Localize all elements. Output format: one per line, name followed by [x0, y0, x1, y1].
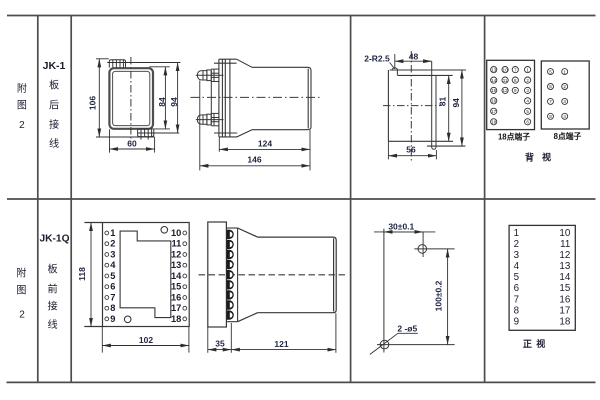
svg-text:7: 7 — [110, 293, 115, 303]
svg-text:4: 4 — [110, 260, 116, 270]
svg-text:1: 1 — [110, 228, 115, 238]
svg-text:94: 94 — [451, 98, 461, 108]
svg-text:13: 13 — [491, 67, 497, 72]
svg-text:10: 10 — [559, 228, 570, 239]
svg-text:4: 4 — [526, 99, 529, 104]
svg-text:5: 5 — [514, 272, 520, 283]
svg-text:8: 8 — [549, 114, 552, 119]
svg-text:8点端子: 8点端子 — [554, 131, 582, 141]
svg-text:1: 1 — [514, 228, 519, 239]
svg-text:1: 1 — [563, 69, 566, 74]
svg-text:102: 102 — [139, 335, 153, 345]
svg-text:118: 118 — [77, 267, 87, 281]
svg-text:前: 前 — [48, 282, 58, 295]
svg-text:接: 接 — [49, 118, 59, 131]
svg-text:4: 4 — [563, 114, 566, 119]
svg-text:附: 附 — [17, 82, 27, 95]
svg-text:18: 18 — [491, 120, 497, 125]
svg-text:17: 17 — [171, 303, 181, 313]
svg-text:6: 6 — [549, 84, 552, 89]
svg-text:3: 3 — [110, 250, 115, 260]
svg-text:16: 16 — [491, 99, 497, 104]
svg-text:接: 接 — [48, 299, 58, 312]
svg-text:JK-1: JK-1 — [43, 60, 66, 72]
svg-text:16: 16 — [559, 294, 570, 305]
svg-text:13: 13 — [171, 260, 181, 270]
svg-text:8: 8 — [110, 303, 115, 313]
svg-text:15: 15 — [491, 88, 497, 93]
svg-text:106: 106 — [87, 96, 97, 110]
svg-text:5: 5 — [110, 271, 115, 281]
svg-text:15: 15 — [559, 283, 570, 294]
svg-text:30±0.1: 30±0.1 — [388, 221, 414, 231]
svg-text:9: 9 — [514, 316, 519, 327]
svg-text:12: 12 — [559, 250, 570, 261]
svg-text:7: 7 — [514, 294, 519, 305]
svg-text:10: 10 — [171, 228, 181, 238]
svg-text:4: 4 — [514, 261, 520, 272]
svg-text:线: 线 — [48, 318, 58, 331]
svg-text:2: 2 — [563, 84, 566, 89]
svg-text:10: 10 — [503, 67, 509, 72]
svg-text:后: 后 — [49, 99, 59, 111]
svg-text:2: 2 — [19, 120, 25, 131]
svg-text:2-R2.5: 2-R2.5 — [364, 53, 390, 63]
svg-text:6: 6 — [110, 282, 115, 292]
svg-text:100±0.2: 100±0.2 — [434, 280, 444, 311]
svg-text:5: 5 — [549, 69, 552, 74]
svg-text:121: 121 — [274, 339, 288, 349]
svg-text:146: 146 — [247, 155, 261, 165]
svg-text:35: 35 — [215, 339, 225, 349]
svg-text:14: 14 — [171, 271, 182, 281]
svg-text:3: 3 — [563, 99, 566, 104]
svg-text:12: 12 — [503, 88, 509, 93]
svg-text:15: 15 — [171, 282, 181, 292]
svg-text:2 -ø5: 2 -ø5 — [397, 323, 417, 333]
svg-text:17: 17 — [559, 305, 570, 316]
svg-text:2: 2 — [514, 239, 519, 250]
svg-text:图: 图 — [17, 99, 27, 111]
svg-text:2: 2 — [19, 309, 25, 320]
svg-text:板: 板 — [48, 263, 58, 276]
svg-text:11: 11 — [560, 239, 570, 250]
svg-text:18点端子: 18点端子 — [498, 132, 530, 142]
svg-text:背: 背 — [525, 151, 534, 162]
svg-text:84: 84 — [157, 97, 167, 107]
svg-text:1: 1 — [526, 67, 529, 72]
svg-text:11: 11 — [171, 239, 181, 249]
svg-text:56: 56 — [406, 145, 416, 155]
svg-text:18: 18 — [171, 314, 181, 324]
svg-text:18: 18 — [559, 316, 570, 327]
svg-text:正: 正 — [523, 339, 532, 349]
svg-text:图: 图 — [16, 285, 26, 297]
svg-text:60: 60 — [127, 139, 137, 149]
svg-text:6: 6 — [514, 283, 520, 294]
svg-text:9: 9 — [514, 88, 517, 93]
svg-text:14: 14 — [559, 272, 570, 283]
svg-text:13: 13 — [559, 261, 570, 272]
svg-text:附: 附 — [16, 267, 26, 280]
svg-text:3: 3 — [514, 250, 520, 261]
svg-text:94: 94 — [169, 97, 179, 107]
svg-text:16: 16 — [171, 293, 181, 303]
svg-text:7: 7 — [514, 67, 517, 72]
svg-text:2: 2 — [526, 78, 529, 83]
svg-text:视: 视 — [536, 338, 545, 349]
svg-text:JK-1Q: JK-1Q — [39, 233, 69, 244]
svg-text:8: 8 — [514, 305, 520, 316]
svg-text:14: 14 — [491, 78, 497, 83]
svg-text:6: 6 — [526, 120, 529, 125]
svg-text:9: 9 — [110, 314, 115, 324]
svg-text:板: 板 — [49, 78, 59, 91]
svg-text:7: 7 — [549, 99, 552, 104]
svg-text:3: 3 — [526, 88, 529, 93]
svg-text:12: 12 — [171, 250, 181, 260]
svg-text:11: 11 — [503, 78, 508, 83]
svg-text:17: 17 — [491, 109, 497, 114]
svg-text:2: 2 — [110, 239, 115, 249]
svg-text:48: 48 — [409, 51, 419, 61]
svg-text:视: 视 — [542, 151, 551, 162]
svg-text:8: 8 — [514, 78, 517, 83]
svg-text:81: 81 — [438, 97, 448, 107]
svg-text:5: 5 — [526, 109, 529, 114]
svg-text:124: 124 — [258, 138, 272, 148]
svg-text:线: 线 — [49, 137, 59, 150]
